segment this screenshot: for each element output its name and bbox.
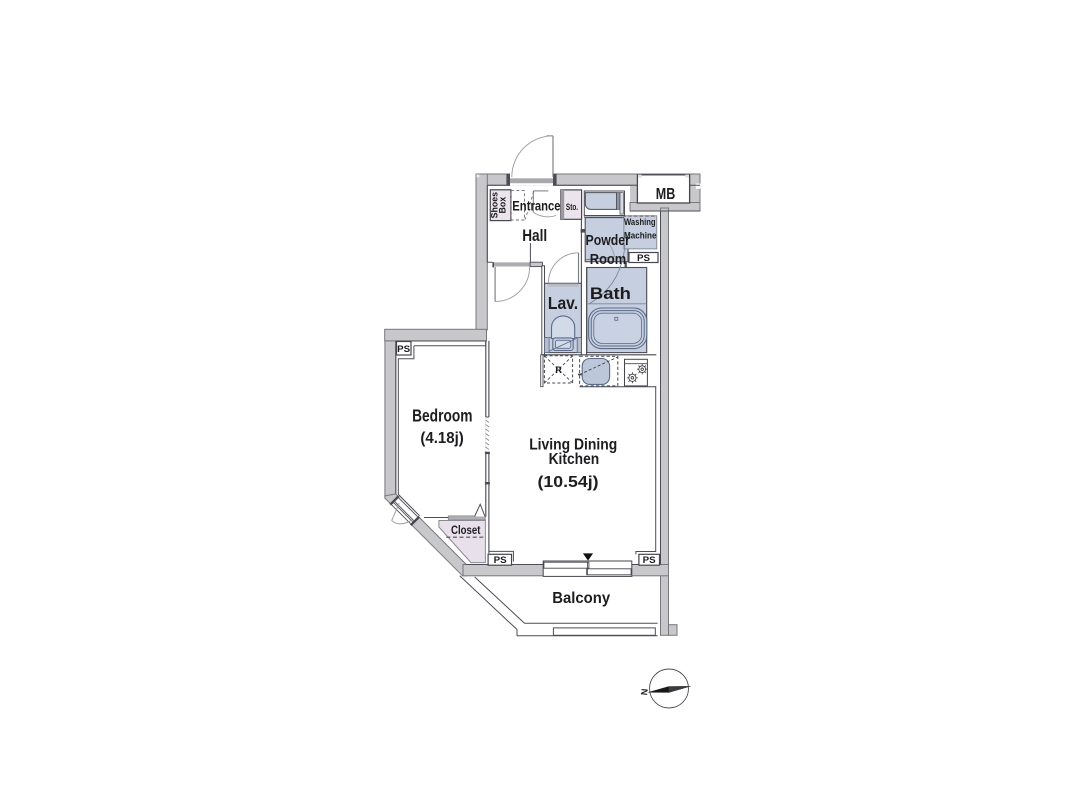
svg-text:MB: MB [656, 186, 676, 203]
svg-text:Entrance: Entrance [512, 198, 561, 213]
svg-text:N: N [639, 688, 650, 696]
svg-text:Hall: Hall [522, 227, 547, 245]
svg-text:Bath: Bath [590, 284, 631, 303]
svg-text:Washing: Washing [624, 217, 656, 227]
svg-text:Room: Room [590, 251, 626, 268]
svg-text:Lav.: Lav. [548, 293, 578, 313]
svg-text:PS: PS [637, 253, 651, 264]
svg-text:Kitchen: Kitchen [549, 451, 600, 468]
svg-text:(10.54j): (10.54j) [538, 474, 599, 491]
svg-text:(4.18j): (4.18j) [420, 430, 463, 447]
svg-text:PS: PS [494, 555, 508, 566]
svg-text:Box: Box [497, 197, 507, 214]
svg-text:Bedroom: Bedroom [412, 407, 472, 426]
svg-text:Closet: Closet [451, 523, 480, 537]
svg-text:Balcony: Balcony [552, 590, 610, 607]
svg-text:PS: PS [397, 344, 411, 355]
svg-text:R: R [555, 365, 562, 375]
svg-text:PS: PS [643, 555, 657, 566]
svg-text:Sto.: Sto. [566, 202, 578, 212]
svg-text:Powder: Powder [586, 232, 630, 249]
